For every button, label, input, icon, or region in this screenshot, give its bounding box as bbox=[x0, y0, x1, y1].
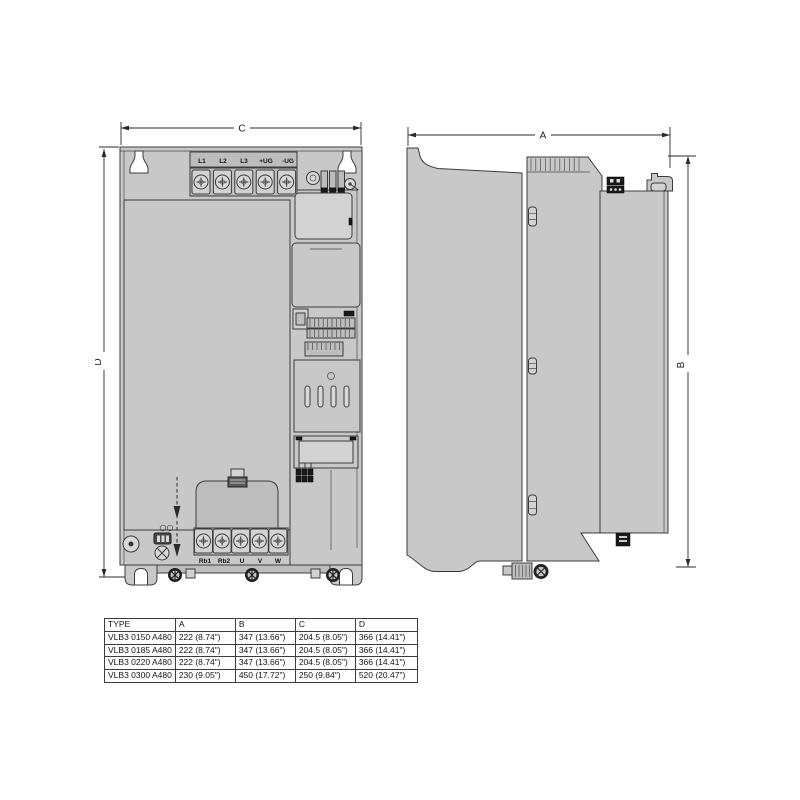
table-row: VLB3 0150 A480 222 (8.74") 347 (13.66") … bbox=[105, 631, 418, 644]
table-cell: 204.5 (8.05") bbox=[295, 644, 355, 657]
table-header-type: TYPE bbox=[105, 619, 176, 632]
front-view-drawing: C D L1 L2 L3 bbox=[95, 110, 405, 610]
table-cell: 222 (8.74") bbox=[175, 644, 235, 657]
table-header-row: TYPE A B C D bbox=[105, 619, 418, 632]
option-compartment bbox=[292, 243, 360, 307]
bottom-mounting-tabs bbox=[125, 565, 362, 585]
table-cell: 230 (9.05") bbox=[175, 670, 235, 683]
terminal-label-l3: L3 bbox=[240, 158, 248, 165]
power-terminal-screws bbox=[190, 168, 297, 196]
dimension-table: TYPE A B C D VLB3 0150 A480 222 (8.74") … bbox=[104, 618, 418, 683]
table-cell: 347 (13.66") bbox=[235, 631, 295, 644]
table-header-b: B bbox=[235, 619, 295, 632]
housing-middle-section bbox=[527, 157, 602, 561]
heatsink-profile bbox=[407, 148, 522, 572]
table-cell: 450 (17.72") bbox=[235, 670, 295, 683]
terminal-label-w: W bbox=[275, 558, 282, 565]
table-header-d: D bbox=[355, 619, 417, 632]
table-row: VLB3 0220 A480 222 (8.74") 347 (13.66") … bbox=[105, 657, 418, 670]
table-cell: 366 (14.41") bbox=[355, 657, 417, 670]
dimension-d-label: D bbox=[95, 358, 104, 365]
table-row: VLB3 0300 A480 230 (9.05") 450 (17.72") … bbox=[105, 670, 418, 683]
dimension-c-label: C bbox=[238, 124, 245, 135]
table-cell-type: VLB3 0300 A480 bbox=[105, 670, 176, 683]
top-right-block bbox=[647, 174, 673, 192]
table-cell: 520 (20.47") bbox=[355, 670, 417, 683]
dimension-a-label: A bbox=[540, 131, 547, 142]
io-cutout bbox=[294, 436, 358, 468]
table-cell-type: VLB3 0150 A480 bbox=[105, 631, 176, 644]
terminal-label-rb1: Rb1 bbox=[199, 558, 212, 565]
dimension-c: C bbox=[121, 122, 361, 145]
table-cell: 204.5 (8.05") bbox=[295, 657, 355, 670]
terminal-label-l1: L1 bbox=[198, 158, 206, 165]
vent-panel bbox=[294, 360, 360, 432]
terminal-label-minus-ug: -UG bbox=[282, 158, 294, 165]
keypad-compartment bbox=[295, 193, 352, 239]
front-cover-profile bbox=[600, 191, 668, 533]
table-cell: 347 (13.66") bbox=[235, 644, 295, 657]
table-cell-type: VLB3 0185 A480 bbox=[105, 644, 176, 657]
table-cell: 366 (14.41") bbox=[355, 644, 417, 657]
table-row: VLB3 0185 A480 222 (8.74") 347 (13.66") … bbox=[105, 644, 418, 657]
table-cell: 222 (8.74") bbox=[175, 657, 235, 670]
terminal-label-rb2: Rb2 bbox=[218, 558, 231, 565]
terminal-label-u: U bbox=[240, 558, 245, 565]
keypad-compartment-latch bbox=[349, 218, 352, 225]
bottom-connector bbox=[616, 533, 630, 546]
dimension-b: B bbox=[668, 156, 696, 567]
terminal-label-v: V bbox=[258, 558, 263, 565]
technical-drawing-page: C D L1 L2 L3 bbox=[0, 0, 800, 800]
table-cell: 250 (9.84") bbox=[295, 670, 355, 683]
terminal-label-l2: L2 bbox=[219, 158, 227, 165]
terminal-label-plus-ug: +UG bbox=[259, 158, 273, 165]
top-connector bbox=[607, 177, 624, 193]
side-view-drawing: A B bbox=[395, 110, 705, 610]
power-terminal-label-strip: L1 L2 L3 +UG -UG bbox=[190, 152, 297, 167]
table-header-c: C bbox=[295, 619, 355, 632]
table-cell: 222 (8.74") bbox=[175, 631, 235, 644]
cable-clamp bbox=[503, 563, 549, 579]
table-cell: 347 (13.66") bbox=[235, 657, 295, 670]
table-cell: 204.5 (8.05") bbox=[295, 631, 355, 644]
dimension-b-label: B bbox=[676, 361, 687, 368]
table-header-a: A bbox=[175, 619, 235, 632]
table-cell: 366 (14.41") bbox=[355, 631, 417, 644]
table-cell-type: VLB3 0220 A480 bbox=[105, 657, 176, 670]
